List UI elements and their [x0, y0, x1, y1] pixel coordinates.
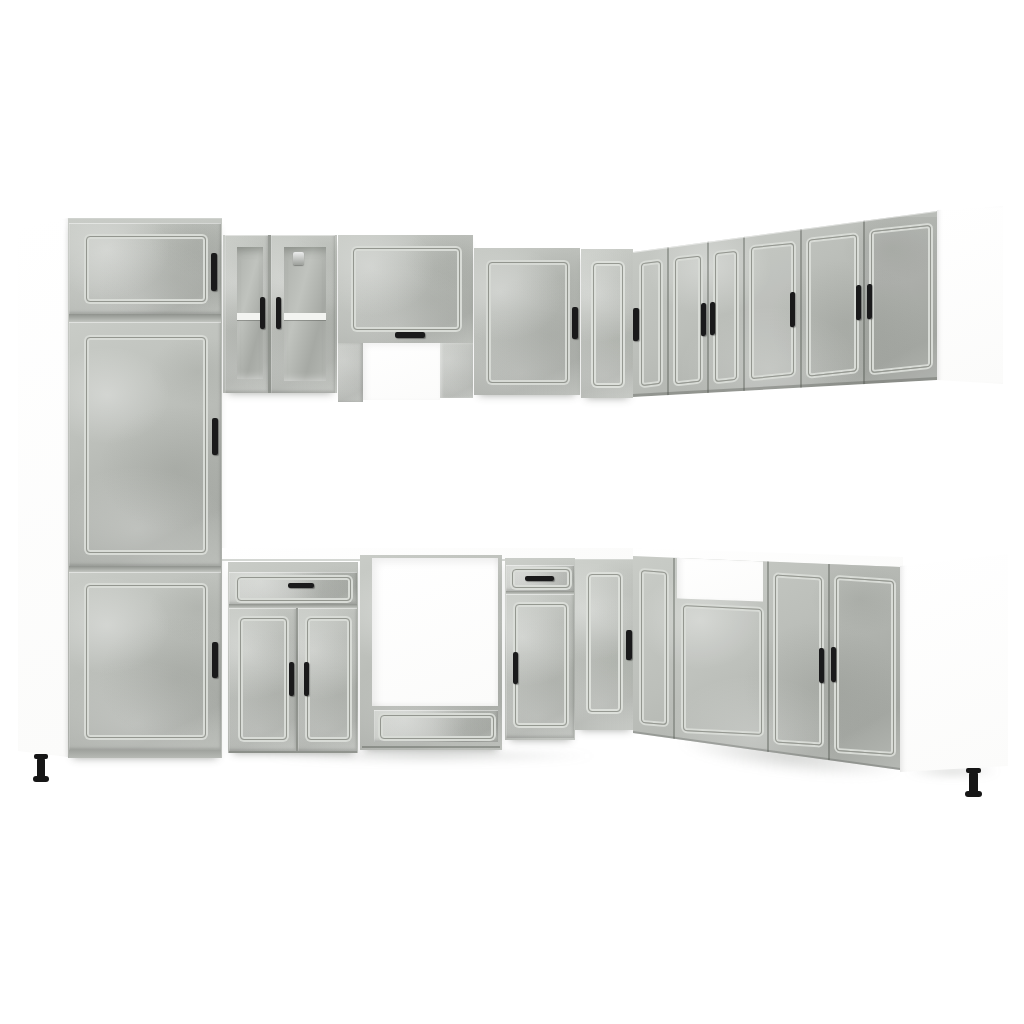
tall-top-door-handle — [211, 253, 217, 291]
corner-base-handle — [626, 630, 632, 660]
cabinet-bottom-shade — [362, 746, 500, 748]
drawer-door-base-cabinet — [505, 558, 575, 740]
right-base-cabinet-run — [633, 556, 900, 770]
door-groove — [240, 618, 287, 740]
wall-cabinet-handle — [572, 307, 578, 339]
door-groove — [641, 570, 667, 725]
hood-open-recess — [363, 343, 440, 400]
glass-door-right-handle — [276, 297, 281, 329]
cabinet-divider — [69, 314, 221, 322]
cabinet-foot-left — [33, 776, 49, 782]
wall-run-pair-handle — [701, 303, 706, 336]
base-door-handle — [289, 662, 294, 696]
door-groove — [593, 263, 623, 386]
door-groove — [307, 618, 350, 740]
cabinet-foot-left — [37, 758, 45, 778]
door-groove — [836, 577, 894, 755]
drawer-handle — [288, 583, 314, 588]
door-groove — [86, 337, 206, 553]
door-seam — [743, 236, 745, 392]
cabinet-bottom-shade — [229, 751, 357, 753]
tall-cabinet — [68, 218, 222, 758]
tall-cabinet-middle-door — [69, 322, 221, 566]
tall-bottom-door-handle — [212, 642, 218, 678]
door-groove — [715, 251, 737, 382]
right-wall-cabinet-run — [633, 211, 937, 397]
drawer-base-cabinet — [228, 562, 358, 753]
oven-open-cavity — [372, 558, 498, 706]
flip-up-door-handle — [395, 332, 425, 338]
drawer-handle — [525, 576, 554, 581]
base-door-left — [229, 608, 296, 751]
base-door-handle — [513, 652, 518, 684]
door-groove — [775, 574, 822, 745]
door-seam — [707, 241, 709, 394]
door-groove — [488, 262, 568, 383]
hood-side-column-right — [440, 343, 473, 398]
door-seam — [800, 228, 802, 389]
door-groove — [86, 585, 206, 738]
oven-drawer-front — [374, 710, 498, 742]
tall-cabinet-top-door — [69, 223, 221, 314]
oven-housing-cabinet — [360, 555, 502, 750]
base-run-pair-handle — [831, 647, 836, 682]
wall-run-end-panel — [937, 206, 1003, 384]
drawer-groove — [380, 715, 494, 739]
door-groove — [515, 604, 567, 726]
door-groove — [808, 234, 857, 376]
base-run-end-panel — [900, 552, 1008, 772]
door-seam — [667, 246, 669, 396]
door-groove — [675, 256, 701, 385]
door-groove — [871, 225, 931, 373]
wall-run-pair-handle — [867, 284, 872, 319]
wall-run-pair-handle — [710, 302, 715, 335]
hood-side-column-left — [338, 343, 363, 402]
glass-door-hinge — [293, 252, 304, 265]
drawer-front — [229, 572, 357, 604]
hood-bridge-cabinet — [338, 235, 473, 402]
tall-cabinet-bottom-door — [69, 572, 221, 750]
cabinet-foot-right — [965, 791, 982, 797]
door-seam — [673, 558, 675, 739]
flip-up-door — [338, 235, 473, 343]
wall-run-single-handle — [790, 292, 795, 327]
glass-door-left-handle — [260, 297, 265, 329]
door-groove — [86, 236, 206, 302]
cabinet-foot-right — [969, 772, 978, 793]
tall-middle-door-handle — [212, 418, 218, 455]
corner-wall-cabinet — [581, 249, 633, 398]
door-seam — [863, 220, 865, 385]
corner-wall-handle — [633, 308, 639, 341]
base-run-pair-handle — [819, 648, 824, 683]
tall-cabinet-side-panel — [18, 218, 68, 757]
wall-cabinet-single — [474, 248, 580, 395]
door-groove — [353, 248, 460, 330]
door-groove — [588, 574, 621, 712]
cabinet-shelf — [284, 313, 326, 320]
wall-run-pair-handle — [856, 285, 861, 320]
product-image-kitchen-set — [0, 0, 1024, 1024]
cabinet-plinth-shade — [69, 750, 221, 758]
base-door-handle — [304, 662, 309, 696]
door-seam — [767, 561, 769, 752]
door-groove — [641, 261, 661, 386]
door-groove — [751, 243, 794, 380]
door-seam — [828, 564, 830, 760]
drawer-groove — [237, 577, 351, 601]
door-groove — [683, 605, 762, 735]
